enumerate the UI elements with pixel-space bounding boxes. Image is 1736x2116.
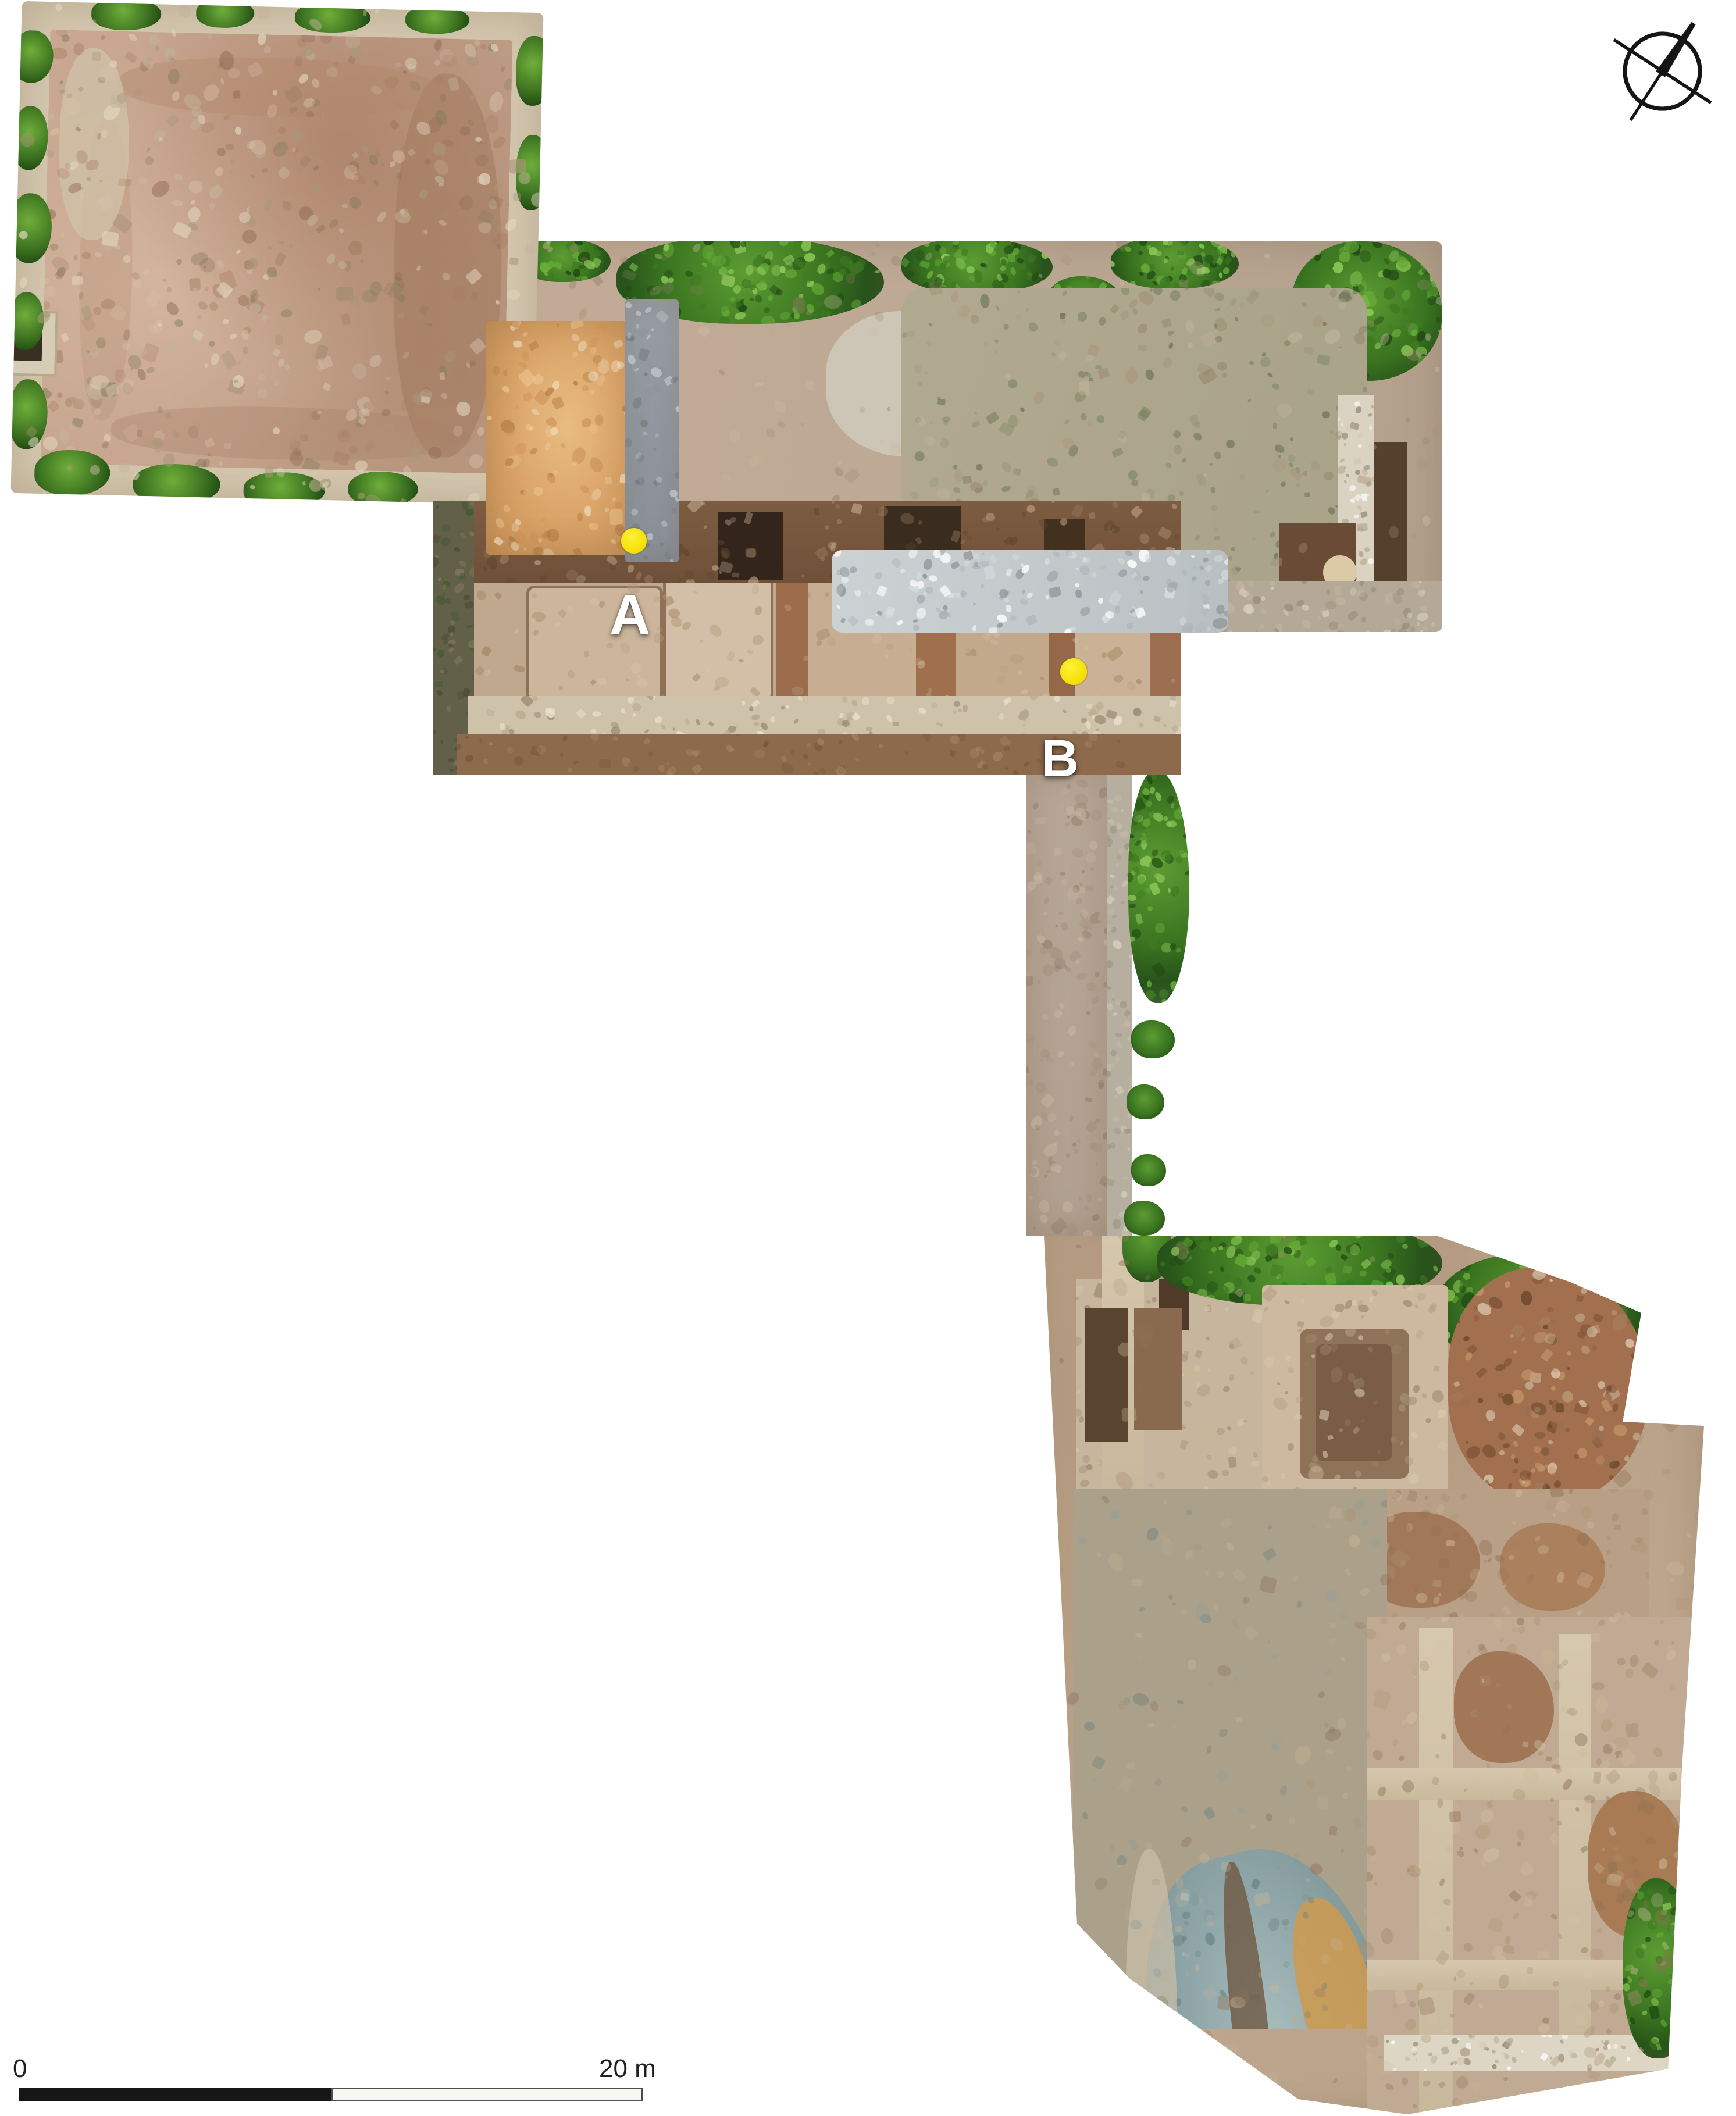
vegetation-tuft xyxy=(295,2,371,34)
area-label-a: A xyxy=(609,583,650,647)
vegetation-tuft xyxy=(1131,1020,1175,1058)
se-rooms xyxy=(1367,1617,1695,2114)
vegetation-tuft xyxy=(515,35,544,106)
orthophoto-figure: A B 0 20 m xyxy=(0,0,1736,2116)
corridor-area xyxy=(1026,770,1189,1236)
scale-bar xyxy=(19,2088,643,2101)
vegetation-tuft xyxy=(348,471,418,505)
vegetation-tuft xyxy=(1124,1201,1165,1236)
vegetation-bush xyxy=(1623,1878,1695,2058)
room-divider-wall xyxy=(776,583,808,702)
vegetation-tuft xyxy=(34,449,110,497)
right-rubble-extension xyxy=(1227,581,1442,632)
vegetation-tuft xyxy=(196,1,255,28)
area-label-b: B xyxy=(1041,727,1079,791)
scale-start-label: 0 xyxy=(13,2055,65,2083)
vegetation-tuft xyxy=(12,106,48,170)
platform-pit xyxy=(1300,1329,1409,1479)
vegetation-tuft xyxy=(133,463,221,505)
corridor-soil xyxy=(1026,770,1108,1236)
soil-patch xyxy=(118,55,445,120)
scale-bar-filled xyxy=(19,2088,331,2101)
room-fill xyxy=(1454,1651,1554,1763)
courtyard-area xyxy=(11,1,544,505)
north-arrow-icon xyxy=(1603,12,1722,131)
limestone-rubble-band xyxy=(832,550,1228,633)
scale-end-label: 20 m xyxy=(599,2055,727,2083)
vegetation-band xyxy=(901,241,1053,294)
south-complex-area xyxy=(1035,1209,1707,2116)
vegetation-tuft xyxy=(12,30,54,84)
findspot-marker-a xyxy=(621,528,647,554)
stone-wall-column xyxy=(625,299,679,562)
wall-slot xyxy=(1085,1308,1128,1442)
vegetation-tuft xyxy=(243,472,325,505)
vegetation-tuft xyxy=(515,134,544,210)
corridor-vegetation xyxy=(1128,770,1189,1003)
pit-floor xyxy=(1316,1344,1392,1461)
vegetation-tuft xyxy=(91,1,162,31)
vegetation-tuft xyxy=(1127,1084,1164,1119)
scale-bar-empty xyxy=(331,2088,643,2101)
room-floor-slab xyxy=(666,583,771,699)
basin-pale-streak xyxy=(1125,1849,1178,2029)
wall-slot xyxy=(1134,1308,1182,1430)
findspot-marker-b xyxy=(1060,658,1087,685)
vegetation-band xyxy=(1111,241,1239,289)
trench-opening xyxy=(718,512,783,580)
rubble-zone xyxy=(1448,1268,1649,1503)
vegetation-tuft xyxy=(1131,1154,1166,1186)
corridor-wall xyxy=(1107,770,1132,1236)
basin-area xyxy=(1073,1489,1387,2029)
courtyard-interior xyxy=(41,30,513,474)
orange-room xyxy=(486,321,634,555)
room-fill xyxy=(1500,1523,1605,1611)
vegetation-tuft xyxy=(405,5,470,34)
